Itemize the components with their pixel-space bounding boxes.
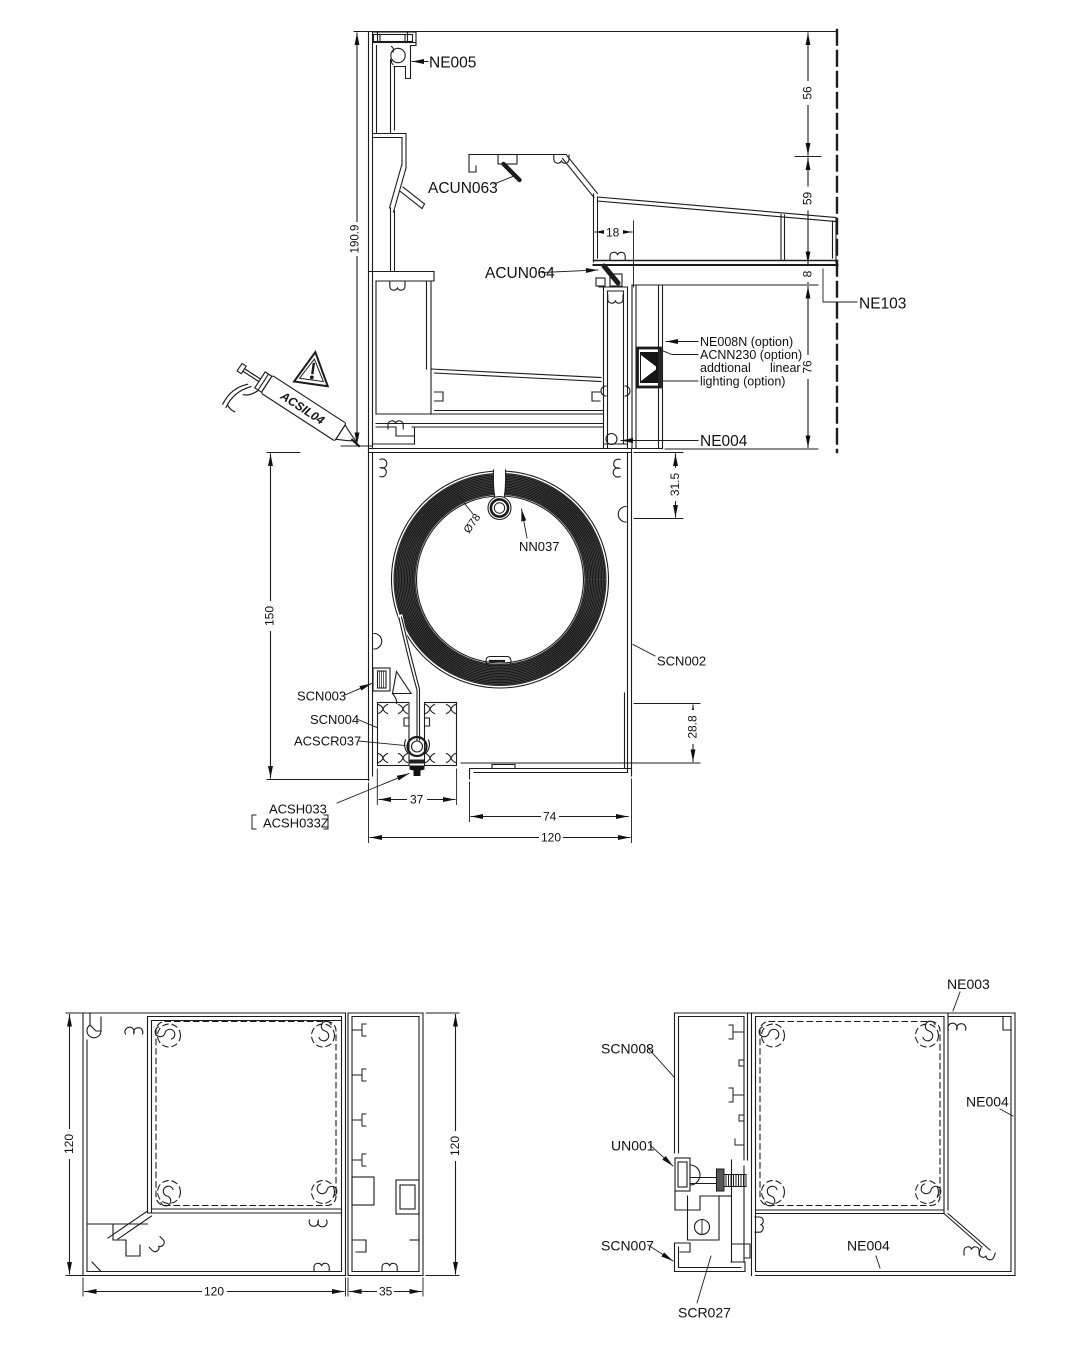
svg-text:ACUN064: ACUN064: [485, 265, 555, 282]
svg-text:120: 120: [541, 831, 561, 845]
svg-text:ACUN063: ACUN063: [428, 180, 498, 197]
svg-text:lighting (option): lighting (option): [700, 375, 785, 389]
svg-text:120: 120: [204, 1285, 224, 1299]
svg-text:59: 59: [801, 192, 815, 206]
svg-text:NE008N (option): NE008N (option): [700, 335, 793, 349]
svg-text:UN001: UN001: [611, 1138, 655, 1154]
svg-text:NE005: NE005: [429, 55, 476, 72]
svg-text:NE004: NE004: [847, 1238, 890, 1254]
svg-text:56: 56: [801, 86, 815, 100]
svg-text:SCN003: SCN003: [297, 689, 346, 704]
svg-text:ACSH033Z: ACSH033Z: [263, 816, 329, 831]
svg-text:190.9: 190.9: [350, 225, 362, 254]
svg-text:NE103: NE103: [859, 296, 906, 313]
svg-text:linear: linear: [770, 361, 801, 375]
svg-text:ACSH033: ACSH033: [269, 802, 327, 817]
svg-text:SCR027: SCR027: [678, 1305, 731, 1321]
svg-text:addtional: addtional: [700, 361, 751, 375]
svg-text:31.5: 31.5: [668, 472, 682, 496]
svg-text:SCN007: SCN007: [601, 1238, 654, 1254]
svg-text:120: 120: [448, 1136, 462, 1156]
svg-text:NE004: NE004: [966, 1094, 1009, 1110]
svg-text:28.8: 28.8: [686, 715, 700, 739]
svg-text:120: 120: [62, 1134, 76, 1154]
svg-text:NN037: NN037: [519, 539, 559, 554]
svg-text:37: 37: [410, 793, 424, 807]
svg-text:35: 35: [379, 1285, 393, 1299]
svg-text:SCN008: SCN008: [601, 1041, 654, 1057]
svg-text:NE003: NE003: [947, 976, 990, 992]
svg-text:8: 8: [801, 270, 815, 277]
svg-text:ACNN230 (option): ACNN230 (option): [700, 348, 802, 362]
svg-text:NE004: NE004: [700, 433, 748, 450]
svg-text:ACSCR037: ACSCR037: [294, 734, 361, 749]
svg-text:76: 76: [801, 360, 815, 374]
svg-text:SCN002: SCN002: [657, 654, 706, 669]
svg-text:74: 74: [543, 810, 557, 824]
svg-text:SCN004: SCN004: [310, 712, 359, 727]
svg-text:18: 18: [606, 226, 620, 240]
svg-text:150: 150: [263, 606, 277, 626]
